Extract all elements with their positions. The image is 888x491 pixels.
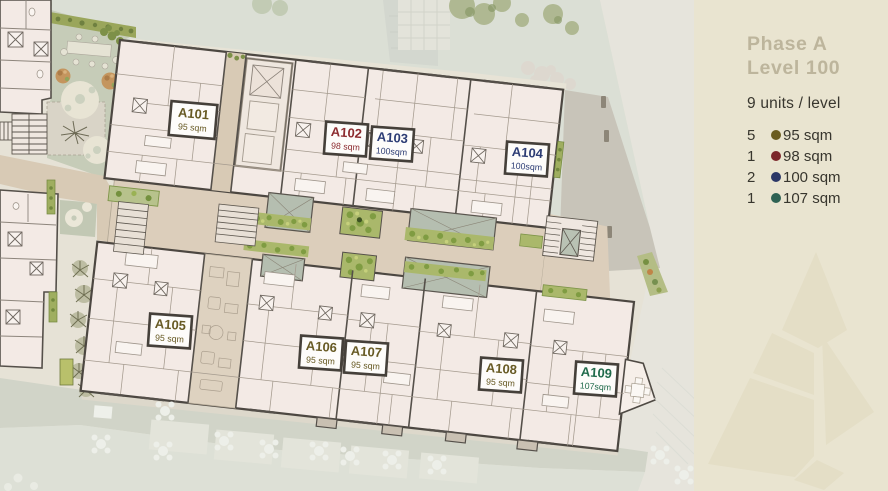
svg-text:9 units / level: 9 units / level xyxy=(747,95,840,112)
svg-text:98 sqm: 98 sqm xyxy=(331,140,360,152)
svg-text:A109: A109 xyxy=(580,364,612,381)
svg-text:A104: A104 xyxy=(511,144,544,161)
svg-text:A106: A106 xyxy=(305,338,337,355)
svg-text:Level 100: Level 100 xyxy=(747,57,840,79)
svg-text:95 sqm: 95 sqm xyxy=(306,354,335,366)
svg-text:A108: A108 xyxy=(485,360,517,377)
svg-text:100 sqm: 100 sqm xyxy=(783,169,841,186)
svg-text:A103: A103 xyxy=(376,129,408,146)
svg-text:95 sqm: 95 sqm xyxy=(486,376,515,388)
svg-text:107 sqm: 107 sqm xyxy=(783,190,841,207)
svg-text:95 sqm: 95 sqm xyxy=(351,359,380,371)
svg-text:A101: A101 xyxy=(177,105,209,123)
svg-text:2: 2 xyxy=(747,169,755,186)
svg-text:98 sqm: 98 sqm xyxy=(783,148,832,165)
svg-text:A102: A102 xyxy=(330,124,362,141)
svg-text:A105: A105 xyxy=(154,316,186,333)
svg-text:A107: A107 xyxy=(350,343,382,360)
svg-text:1: 1 xyxy=(747,190,755,207)
svg-text:1: 1 xyxy=(747,148,755,165)
svg-text:95 sqm: 95 sqm xyxy=(155,332,184,344)
svg-text:95 sqm: 95 sqm xyxy=(783,127,832,144)
svg-text:5: 5 xyxy=(747,127,755,144)
svg-text:Phase A: Phase A xyxy=(747,33,827,55)
